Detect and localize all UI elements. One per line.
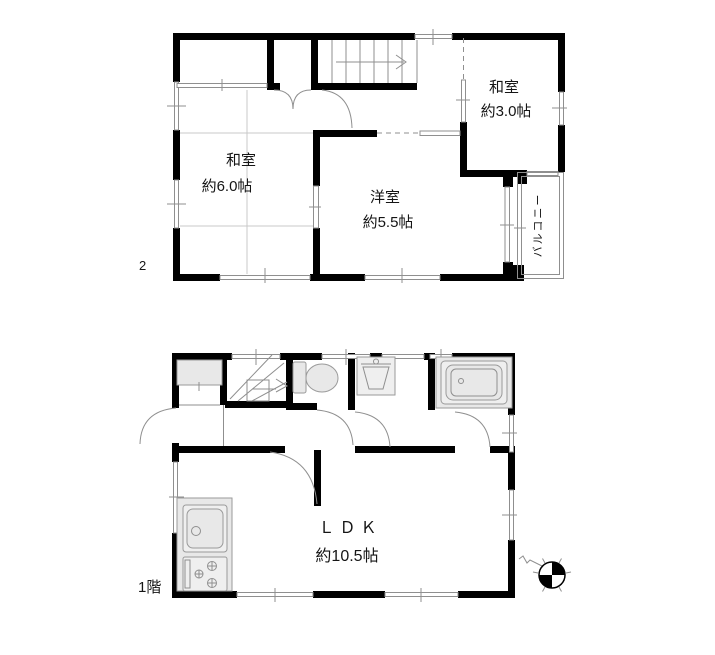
room-label-ldk: ＬＤＫ [318,521,381,537]
room-label-balcony: バルコニー [534,193,545,258]
closet-door-arc-left [274,90,293,109]
ldk-door-arc [270,452,317,504]
toilet [293,362,338,393]
room-area-washitsu6: 約6.0帖 [202,179,253,194]
floor1-doors [270,410,490,504]
bath-door-arc [455,412,490,447]
shoe-cabinet [177,360,222,385]
floor1-label: 1階 [138,580,161,595]
stairs-1f [230,355,287,401]
room-label-yoshitsu: 洋室 [370,190,400,205]
kitchen [177,498,232,591]
room-label-washitsu3: 和室 [489,80,519,95]
toilet-tank [293,362,306,393]
washroom-door-arc [355,412,390,447]
washbasin [357,357,395,395]
toilet-door-arc [317,410,353,445]
entrance [140,360,224,446]
floor2-label: 2 [139,259,146,272]
room-area-yoshitsu: 約5.5帖 [363,215,414,230]
yoshitsu-door-arc [322,90,352,128]
north-arrow-line [519,556,542,566]
ldk-door-leaf [314,450,321,506]
entrance-door-arc [140,408,176,444]
toilet-bowl [306,364,338,392]
north-indicator [519,556,571,592]
bathtub [436,357,512,408]
room-area-ldk: 約10.5帖 [315,549,378,565]
room-label-washitsu6: 和室 [226,153,256,168]
floor2-doors [274,90,352,128]
floorplan-image: 和室 約6.0帖 洋室 約5.5帖 和室 約3.0帖 バルコニー 2 ＬＤＫ 約… [0,0,715,655]
stairs-2f [332,40,417,83]
room-area-washitsu3: 約3.0帖 [481,104,532,119]
closet-door-arc-right [293,90,311,109]
